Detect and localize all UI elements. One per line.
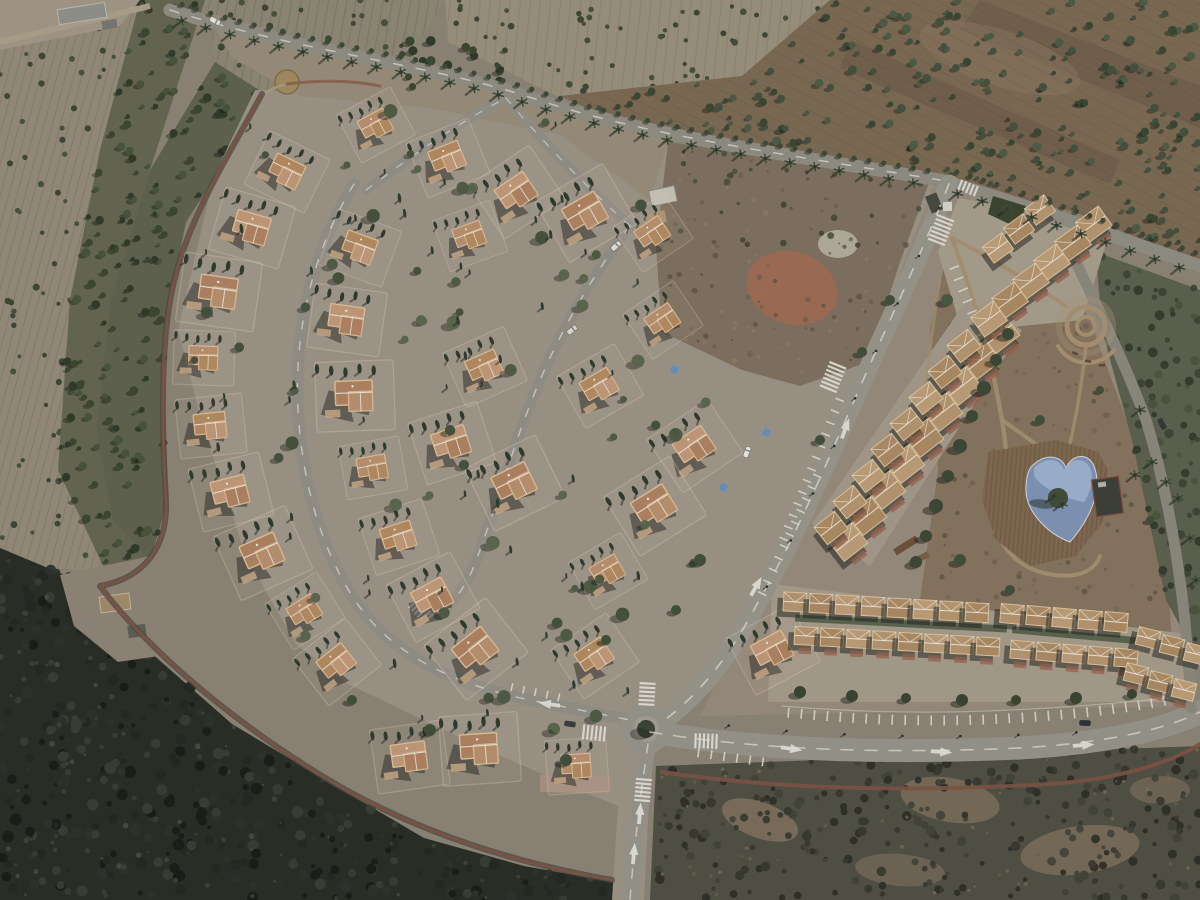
photo-haze — [0, 0, 1200, 900]
aerial-photo-villa-urbanization — [0, 0, 1200, 900]
aerial-photo-canvas — [0, 0, 1200, 900]
